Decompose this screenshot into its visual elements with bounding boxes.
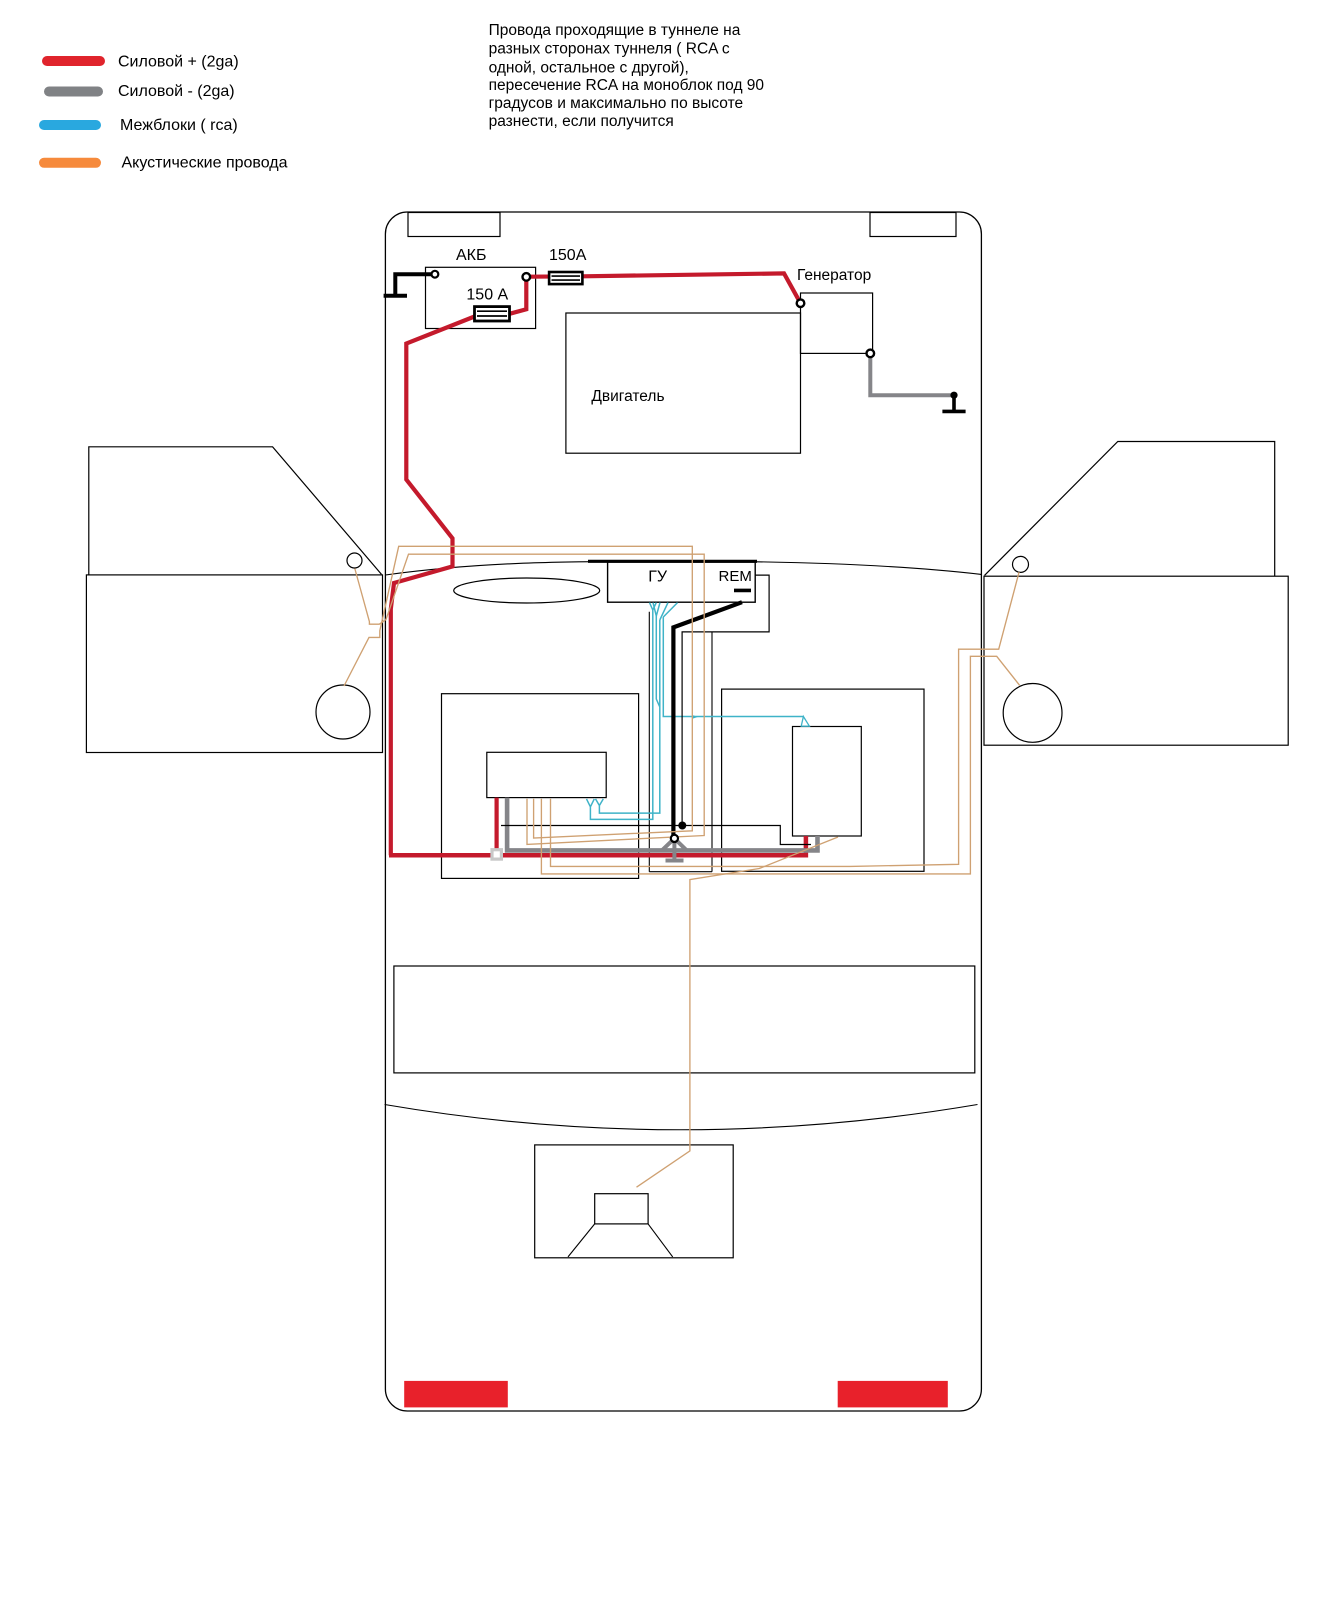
svg-text:150A: 150A [549,247,587,264]
svg-text:пересечение RCA на моноблок по: пересечение RCA на моноблок под 90 [489,77,765,94]
svg-text:Межблоки ( rca): Межблоки ( rca) [120,117,238,134]
svg-text:Силовой + (2ga): Силовой + (2ga) [118,53,239,70]
svg-text:разных сторонах туннеля ( RCA: разных сторонах туннеля ( RCA с [489,41,730,58]
svg-text:Генератор: Генератор [797,267,871,284]
svg-text:разнести, если получится: разнести, если получится [489,113,674,130]
svg-text:Провода проходящие в туннеле н: Провода проходящие в туннеле на [489,22,741,39]
svg-text:Силовой - (2ga): Силовой - (2ga) [118,83,235,100]
svg-text:150 А: 150 А [466,286,508,303]
svg-text:Акустические провода: Акустические провода [122,155,288,172]
svg-text:одной, остальное с другой),: одной, остальное с другой), [489,60,689,77]
svg-text:REM: REM [719,568,752,585]
svg-text:ГУ: ГУ [648,569,668,586]
svg-text:градусов и максимально по высо: градусов и максимально по высоте [489,95,744,112]
svg-text:Двигатель: Двигатель [591,388,664,405]
svg-text:АКБ: АКБ [456,247,487,264]
